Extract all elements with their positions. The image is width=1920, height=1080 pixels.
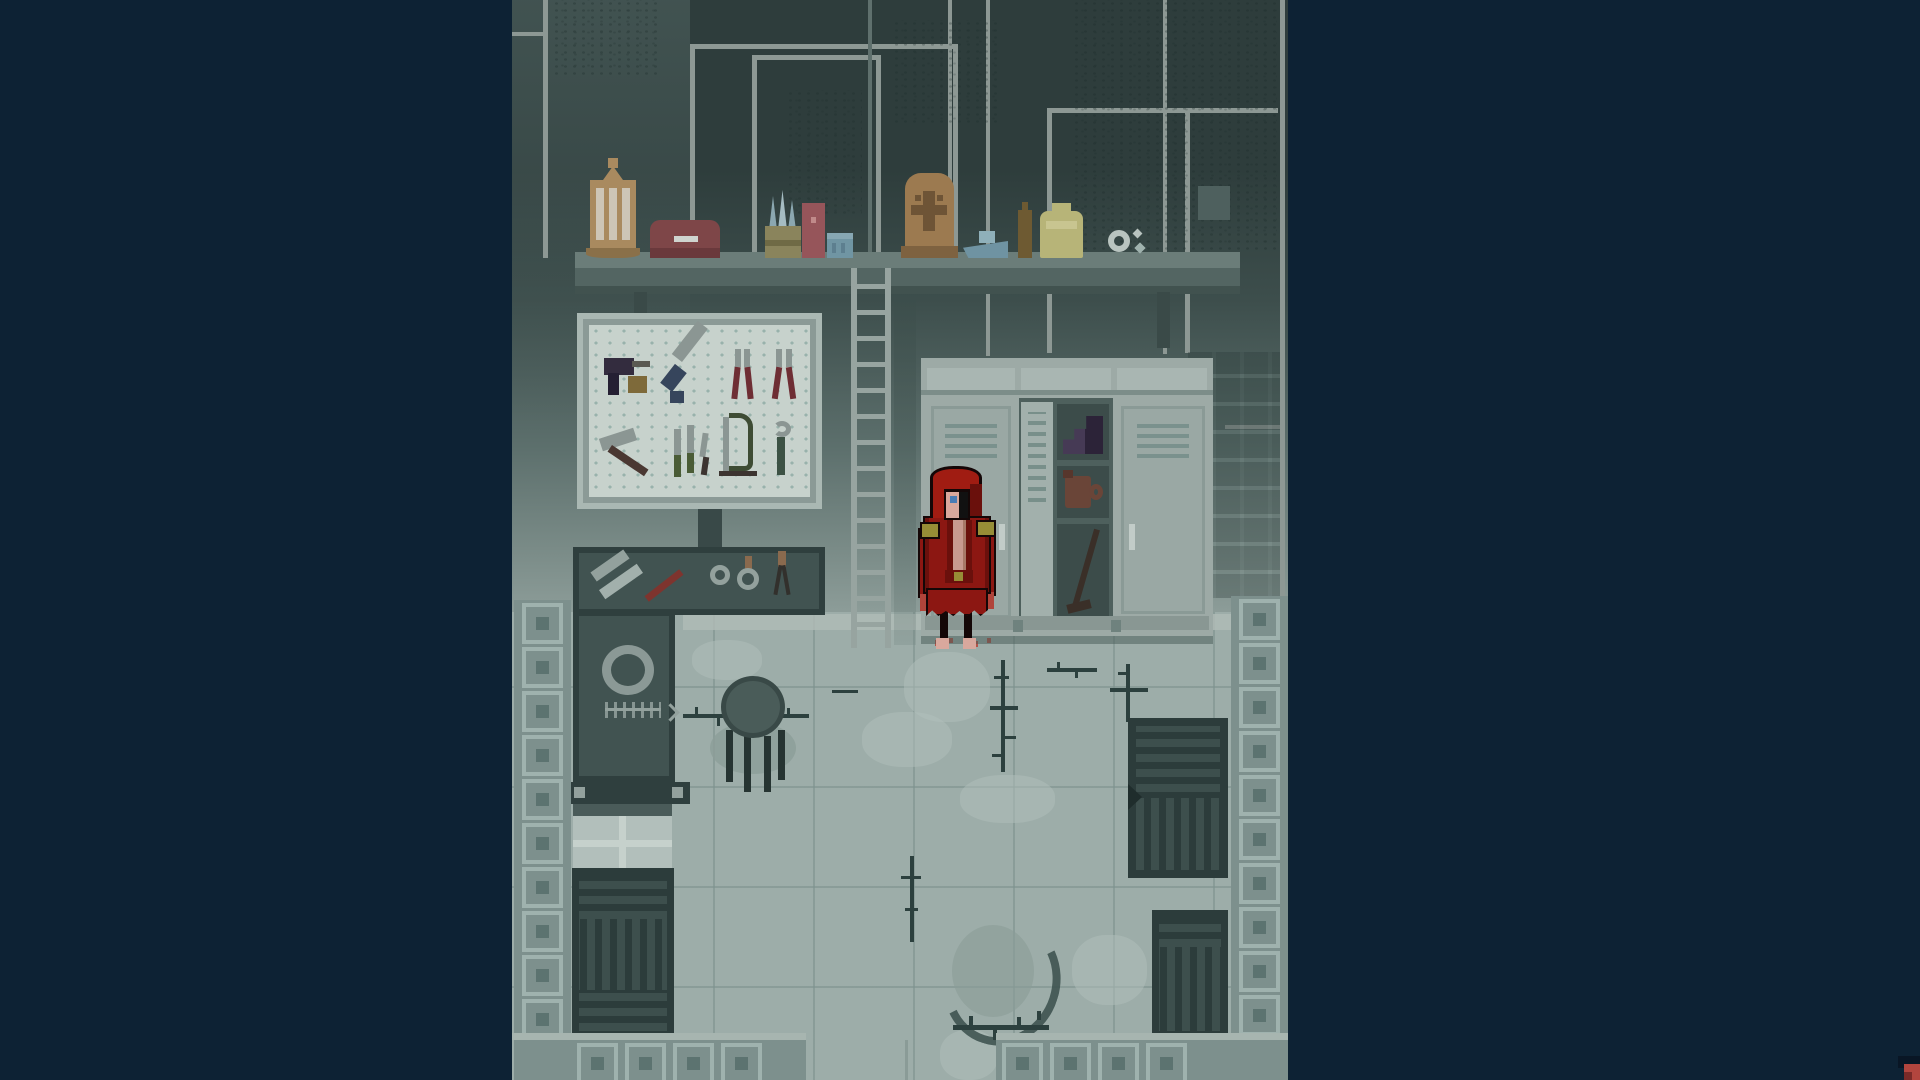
inner-frame-right	[876, 55, 881, 255]
workbench-leg	[573, 610, 675, 782]
wall-rod	[868, 0, 872, 268]
character-foot	[936, 638, 949, 649]
board-bracket	[698, 509, 722, 549]
border-tile-column-right	[1231, 596, 1288, 1080]
border-tile-row-right	[996, 1040, 1231, 1080]
bench-base	[568, 782, 690, 804]
character-foot	[963, 638, 976, 649]
stool-leg	[764, 736, 771, 792]
dust-patch	[862, 712, 952, 767]
locker-shelf-middle	[1057, 466, 1109, 518]
scratch-mark	[910, 856, 914, 942]
floor-hatch[interactable]	[573, 804, 672, 870]
tool-hacksaw	[723, 413, 755, 479]
locker-open-bay[interactable]	[1019, 398, 1113, 626]
locker-door-ajar[interactable]	[1021, 402, 1053, 622]
character-hood-side	[970, 484, 982, 516]
shelf-item-maroon-case[interactable]	[650, 220, 720, 258]
grime-patch	[892, 20, 1002, 125]
shelf-item-gear-trinket[interactable]	[1108, 228, 1146, 256]
stool[interactable]	[721, 676, 785, 738]
tool-chisel-set	[674, 425, 714, 481]
locker-shelf-bottom	[1057, 524, 1109, 620]
wall-pipe	[512, 32, 543, 36]
grime-patch	[1072, 0, 1277, 250]
bench-fishbone-spine	[605, 708, 661, 711]
tool-pliers	[772, 349, 796, 403]
border-step-edge	[996, 1033, 1288, 1040]
wall-edge-pipe	[1280, 0, 1285, 598]
stool-leg	[744, 736, 751, 792]
bench-large-ring	[602, 645, 654, 695]
tool-handsaw	[672, 347, 722, 407]
belt-buckle	[954, 572, 963, 581]
crowbar	[1072, 529, 1100, 608]
tool-wrench	[769, 421, 795, 481]
game-viewport	[512, 0, 1288, 1080]
border-tile-row-left	[571, 1040, 806, 1080]
character-hood-side	[930, 484, 944, 518]
dust-patch	[1072, 935, 1147, 1005]
locker-handle[interactable]	[999, 524, 1005, 550]
shelf-bracket	[1157, 292, 1170, 348]
character-eye	[950, 496, 957, 503]
border-tile-column-left	[514, 600, 571, 1080]
grime-patch	[552, 0, 662, 75]
locker-door-right[interactable]	[1121, 406, 1205, 614]
locker-shelf-top	[1057, 404, 1109, 460]
character-epaulette	[976, 520, 996, 537]
border-step-edge	[512, 1033, 806, 1040]
brown-jug	[1065, 476, 1091, 508]
shelf-item-brush-jar[interactable]	[765, 196, 801, 258]
scratch-mark	[1001, 660, 1005, 772]
crate-bottom-left[interactable]	[572, 868, 674, 1038]
crate-bottom-right[interactable]	[1152, 910, 1228, 1038]
shelf-item-blue-tin[interactable]	[827, 233, 853, 258]
wall-shelf	[575, 252, 1240, 294]
bench-washer	[710, 565, 730, 585]
shelf-item-toy-boat[interactable]	[963, 231, 1008, 258]
pallet-right[interactable]	[1128, 718, 1228, 878]
scratch-mark	[1126, 664, 1130, 722]
tool-hammer	[600, 425, 658, 477]
ladder-shadow-pipe	[894, 300, 916, 645]
stool-leg	[726, 730, 733, 782]
scratch-mark	[832, 690, 858, 693]
player-character[interactable]	[918, 466, 996, 650]
shelf-item-bottle[interactable]	[1018, 210, 1032, 258]
shelf-item-red-box[interactable]	[802, 203, 825, 258]
exit-gap-grout	[905, 1040, 908, 1080]
tool-pegboard[interactable]	[577, 313, 822, 509]
dust-patch	[692, 640, 762, 680]
shelf-item-birdhouse[interactable]	[901, 173, 958, 258]
bench-hand-mirror	[737, 556, 761, 594]
corner-marker	[1904, 1064, 1920, 1080]
bench-scissors	[772, 551, 792, 599]
tool-drill	[604, 350, 652, 400]
wall-patch	[1198, 186, 1230, 220]
ladder[interactable]	[851, 268, 891, 648]
character-robe-hem	[926, 588, 988, 616]
locker-handle[interactable]	[1129, 524, 1135, 550]
character-epaulette	[920, 522, 940, 539]
inner-frame-left	[752, 55, 757, 255]
dust-patch	[960, 775, 1055, 823]
shelf-item-yellow-jar[interactable]	[1040, 203, 1083, 258]
scratch-mark	[953, 1025, 1049, 1030]
stool-leg	[778, 730, 785, 780]
purple-boots	[1063, 416, 1103, 454]
tool-pliers	[732, 349, 754, 403]
scratch-mark	[1047, 668, 1097, 672]
wall-pipe	[543, 0, 548, 258]
shelf-item-lantern[interactable]	[586, 158, 640, 258]
inner-frame-top	[752, 55, 881, 60]
